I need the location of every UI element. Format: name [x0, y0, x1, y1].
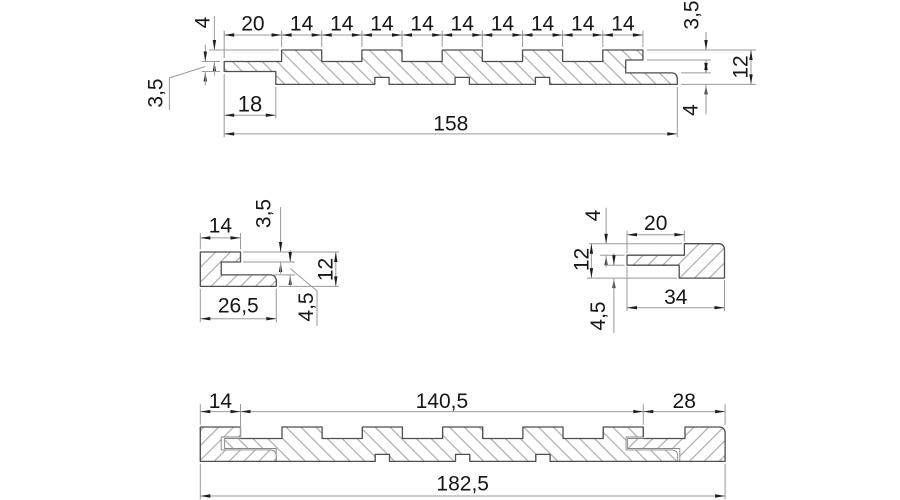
- svg-text:4,5: 4,5: [587, 301, 610, 330]
- svg-text:14: 14: [611, 13, 635, 36]
- svg-text:34: 34: [664, 286, 688, 309]
- svg-text:28: 28: [673, 390, 696, 413]
- svg-text:158: 158: [433, 113, 468, 136]
- svg-text:4,5: 4,5: [295, 292, 318, 321]
- svg-text:14: 14: [410, 13, 434, 36]
- svg-text:14: 14: [491, 13, 515, 36]
- svg-text:14: 14: [209, 390, 233, 413]
- svg-text:182,5: 182,5: [436, 472, 489, 495]
- svg-text:14: 14: [451, 13, 475, 36]
- svg-text:20: 20: [644, 212, 667, 235]
- svg-text:3,5: 3,5: [253, 199, 276, 228]
- svg-text:14: 14: [531, 13, 555, 36]
- svg-text:20: 20: [241, 13, 264, 36]
- svg-text:3,5: 3,5: [145, 78, 168, 107]
- svg-text:14: 14: [290, 13, 314, 36]
- svg-text:12: 12: [730, 55, 753, 78]
- svg-text:14: 14: [209, 215, 233, 238]
- svg-text:18: 18: [238, 92, 262, 117]
- svg-text:12: 12: [314, 258, 337, 281]
- svg-text:14: 14: [330, 13, 354, 36]
- svg-text:14: 14: [370, 13, 394, 36]
- svg-text:14: 14: [571, 13, 595, 36]
- svg-text:12: 12: [571, 248, 594, 271]
- svg-text:4: 4: [582, 209, 605, 221]
- svg-text:3,5: 3,5: [681, 0, 704, 29]
- svg-text:140,5: 140,5: [416, 390, 469, 413]
- svg-text:4: 4: [192, 16, 215, 28]
- svg-text:26,5: 26,5: [218, 294, 259, 317]
- svg-text:4: 4: [680, 104, 703, 116]
